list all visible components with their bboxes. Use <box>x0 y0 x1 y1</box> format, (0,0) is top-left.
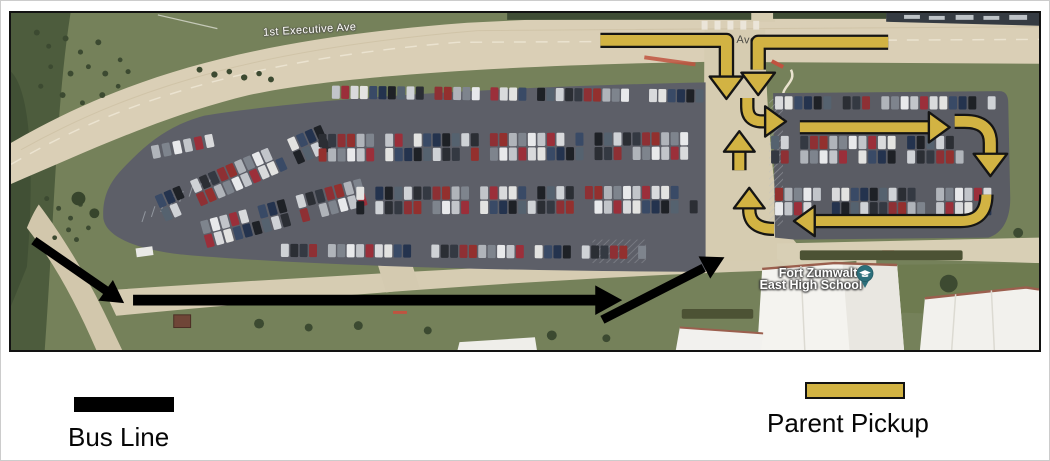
crosswalk <box>702 21 760 30</box>
bus-line-label: Bus Line <box>68 422 169 453</box>
parent-pickup-route-arrow-exit-to-north <box>724 131 755 170</box>
route-annotations <box>11 13 1039 350</box>
annotated-map-figure: 1st Executive Ave 1st Executive Ave Fort… <box>0 0 1050 461</box>
school-label-line2: East High School <box>755 279 867 291</box>
bus-route-arrow-approach-from-west <box>34 241 124 304</box>
parent-pickup-route-arrow-east-lot-bottom-aisle <box>794 195 987 237</box>
shed <box>174 315 191 328</box>
parent-pickup-route-arrow-turn-south-at-east-end <box>955 121 1007 176</box>
roads <box>11 13 1039 350</box>
street-label-1st-executive-ave: 1st Executive Ave <box>263 21 357 39</box>
parent-pickup-route-arrow-turn-north-to-exit <box>734 188 774 229</box>
trees-and-bushes <box>34 30 1023 343</box>
bus-route-arrow-turn-toward-school <box>602 256 724 319</box>
street-label-1st-executive-ave-2: 1st Executive Ave <box>663 31 757 46</box>
bus-route-arrow-bus-lane-eastbound <box>133 285 622 315</box>
parent-pickup-label: Parent Pickup <box>767 408 929 439</box>
empty-stall-lines <box>142 176 211 222</box>
satellite-imagery <box>11 13 1039 350</box>
school-pin-icon <box>856 264 874 290</box>
bus-line-swatch <box>74 397 174 412</box>
parking-lots <box>103 82 1010 272</box>
parent-pickup-route-arrow-east-lot-top-aisle <box>800 112 950 142</box>
terrain <box>11 13 1039 350</box>
north-strip <box>507 13 1039 26</box>
parent-pickup-swatch <box>805 382 905 399</box>
parent-pickup-route-arrow-turn-into-east-lot <box>747 98 786 137</box>
satellite-map: 1st Executive Ave 1st Executive Ave Fort… <box>9 11 1041 352</box>
school-buildings <box>458 263 1039 350</box>
parent-pickup-route-arrow-entry-from-west <box>600 40 743 99</box>
parent-pickup-route-arrow-entry-from-east <box>741 42 888 95</box>
parked-cars <box>151 86 996 259</box>
school-label: Fort Zumwalt East High School <box>755 267 867 291</box>
